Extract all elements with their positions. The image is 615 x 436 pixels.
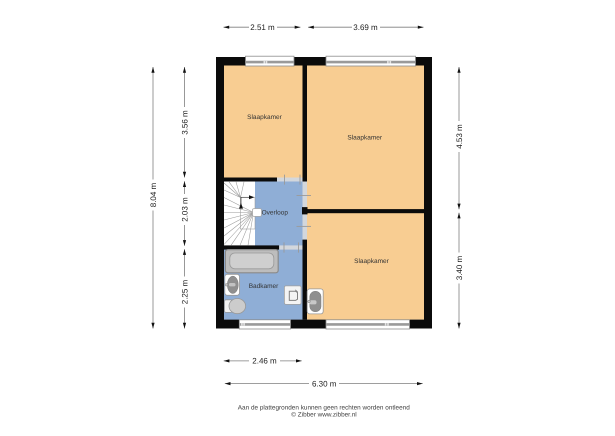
svg-text:© Zibber www.zibber.nl: © Zibber www.zibber.nl xyxy=(291,412,356,419)
svg-text:6.30 m: 6.30 m xyxy=(312,379,337,388)
svg-text:2.51 m: 2.51 m xyxy=(250,23,275,32)
svg-text:Slaapkamer: Slaapkamer xyxy=(354,258,390,265)
svg-text:3.40 m: 3.40 m xyxy=(455,255,464,280)
svg-text:3.69 m: 3.69 m xyxy=(353,23,378,32)
svg-text:Slaapkamer: Slaapkamer xyxy=(347,135,383,142)
svg-text:8.04 m: 8.04 m xyxy=(149,182,158,207)
svg-text:4.53 m: 4.53 m xyxy=(455,124,464,149)
svg-text:Slaapkamer: Slaapkamer xyxy=(247,114,283,121)
svg-text:2.46 m: 2.46 m xyxy=(252,357,277,366)
svg-text:Badkamer: Badkamer xyxy=(249,283,279,290)
svg-text:Overloop: Overloop xyxy=(262,210,289,217)
svg-text:2.03 m: 2.03 m xyxy=(180,197,189,222)
svg-text:2.25 m: 2.25 m xyxy=(180,279,189,304)
svg-text:3.56 m: 3.56 m xyxy=(180,110,189,135)
svg-text:Aan de plattegronden kunnen ge: Aan de plattegronden kunnen geen rechten… xyxy=(238,404,410,411)
